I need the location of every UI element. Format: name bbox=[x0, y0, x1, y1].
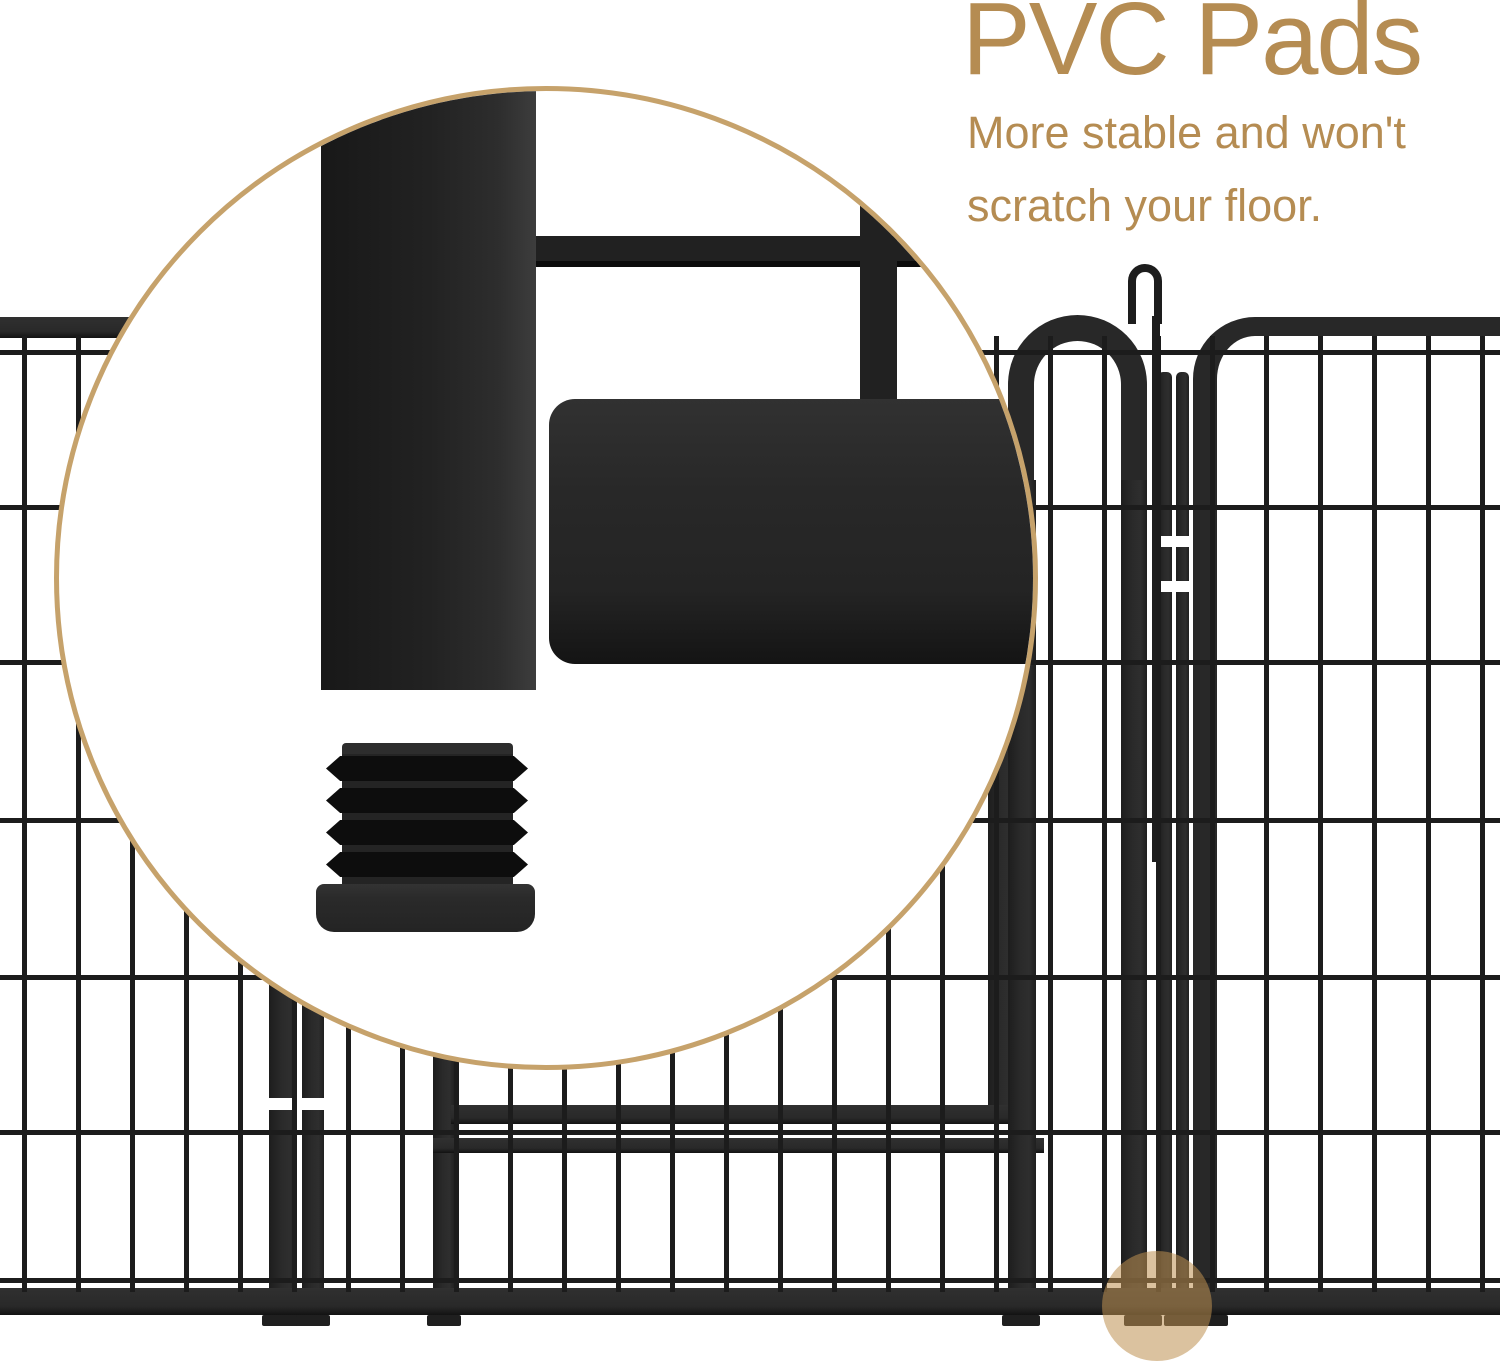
pad-location-highlight-circle bbox=[1102, 1251, 1212, 1361]
frame-post-magnified bbox=[321, 75, 536, 690]
pad-base bbox=[316, 884, 535, 932]
fence-wire-vertical bbox=[1210, 336, 1215, 1292]
subtitle-line-1: More stable and won't bbox=[967, 96, 1406, 169]
pad-rib bbox=[326, 852, 528, 877]
fence-wire-vertical bbox=[1480, 336, 1485, 1292]
pad-rib bbox=[326, 756, 528, 781]
subtitle-line-2: scratch your floor. bbox=[967, 169, 1406, 242]
bottom-rail-magnified bbox=[549, 399, 1041, 664]
fence-wire-vertical bbox=[1264, 336, 1269, 1292]
fence-wire-vertical bbox=[1318, 336, 1323, 1292]
fence-wire-vertical bbox=[1102, 336, 1107, 1292]
pad-rib bbox=[326, 820, 528, 845]
fence-wire-vertical bbox=[1372, 336, 1377, 1292]
fence-wire-vertical bbox=[1426, 336, 1431, 1292]
subtitle-text: More stable and won't scratch your floor… bbox=[967, 96, 1406, 242]
fence-wire-vertical bbox=[1048, 336, 1053, 1292]
fence-wire-horizontal bbox=[0, 1278, 1500, 1283]
fence-wire-vertical bbox=[22, 336, 27, 1292]
page-title: PVC Pads bbox=[962, 0, 1421, 98]
pad-rib bbox=[326, 788, 528, 813]
product-scene: PVC Pads More stable and won't scratch y… bbox=[0, 0, 1500, 1361]
fence-wire-vertical bbox=[1156, 336, 1161, 1292]
fence-wire-horizontal bbox=[0, 1130, 1500, 1135]
